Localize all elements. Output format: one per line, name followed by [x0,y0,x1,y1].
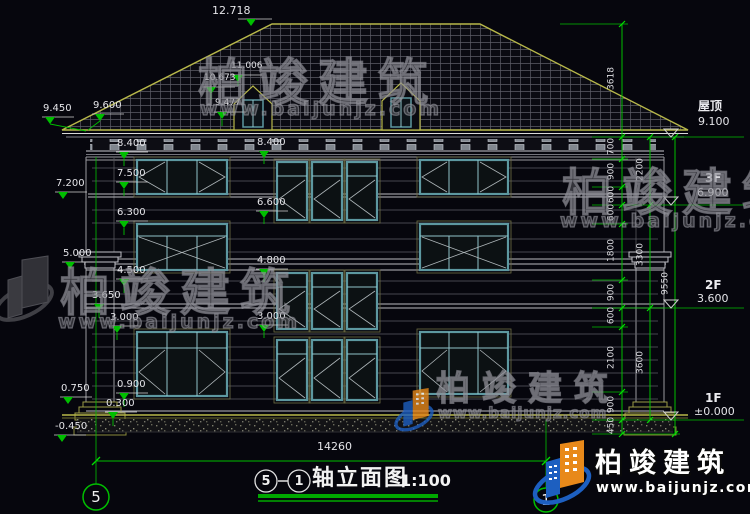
dim-label: 8.400 [257,138,286,148]
cad-elevation-canvas: 12.718 11.006 10.673 9.477 9.450 9.600 7… [0,0,750,514]
ground [62,415,688,432]
level-flag-elev: 3.600 [697,293,729,304]
dim-label: 6.300 [117,208,146,218]
brand-name: 柏竣建筑 [595,450,731,477]
watermark-logo-icon [0,250,60,338]
drawing-title: 轴立面图 [312,468,408,490]
dim-label: 3.650 [92,291,121,301]
watermark-logo-icon-color [394,384,438,440]
dim-label: 7.500 [117,169,146,179]
title-axis-to: 1 [288,475,310,488]
dim-label-dormer-top: 11.006 [231,62,263,71]
dim-chain-segment: 3618 [608,57,617,101]
dim-label: 4.800 [257,256,286,266]
dim-label: 6.600 [257,198,286,208]
dim-label: 9.450 [43,104,72,114]
level-flag-elev: 9.100 [698,116,730,127]
dim-chain-segment: 600 [608,294,617,338]
dim-chain-segment: 2100 [608,336,617,380]
dim-label: 4.500 [117,266,146,276]
level-flag-name: 1F [705,392,722,404]
dim-label: 3.000 [257,312,286,322]
brand-url: www.baijunjz.com [596,481,750,495]
dim-label: 3.000 [110,313,139,323]
title-axis-from: 5 [255,475,277,488]
level-flag-name: 3F [705,172,722,184]
dim-label: 0.900 [117,380,146,390]
axis-bubble-left: 5 [83,490,109,505]
dim-chain-segment: 450 [608,404,617,448]
dim-chain-subtotal: 3600 [637,341,646,385]
drawing-scale: 1:100 [400,473,451,489]
dim-chain-subtotal: 2200 [637,148,646,192]
brand-logo-icon [532,438,598,514]
dim-label-peak: 12.718 [212,5,251,16]
dim-chain-overall: 9550 [662,262,671,306]
roof [62,24,688,137]
dim-label: 9.600 [93,101,122,111]
windows [134,157,511,403]
dim-label: 7.200 [56,179,85,189]
dim-label: 5.000 [63,249,92,259]
level-flag-elev: 6.900 [697,187,729,198]
level-flag-elev: ±0.000 [694,406,735,417]
dim-label-dormer-base: 9.477 [215,99,241,108]
dim-label: -0.450 [55,422,87,432]
dim-label: 0.300 [106,399,135,409]
dim-label: 8.400 [117,139,146,149]
cornice-dentils [86,139,664,155]
bottom-dim-label: 14260 [317,441,352,452]
dim-label: 0.750 [61,384,90,394]
level-flag-name: 2F [705,279,722,291]
level-flag-name: 屋顶 [698,100,722,112]
dim-chain-subtotal: 3300 [637,233,646,277]
dim-chain-segment: 1800 [608,229,617,273]
dim-label-dormer-mid: 10.673 [204,74,236,83]
